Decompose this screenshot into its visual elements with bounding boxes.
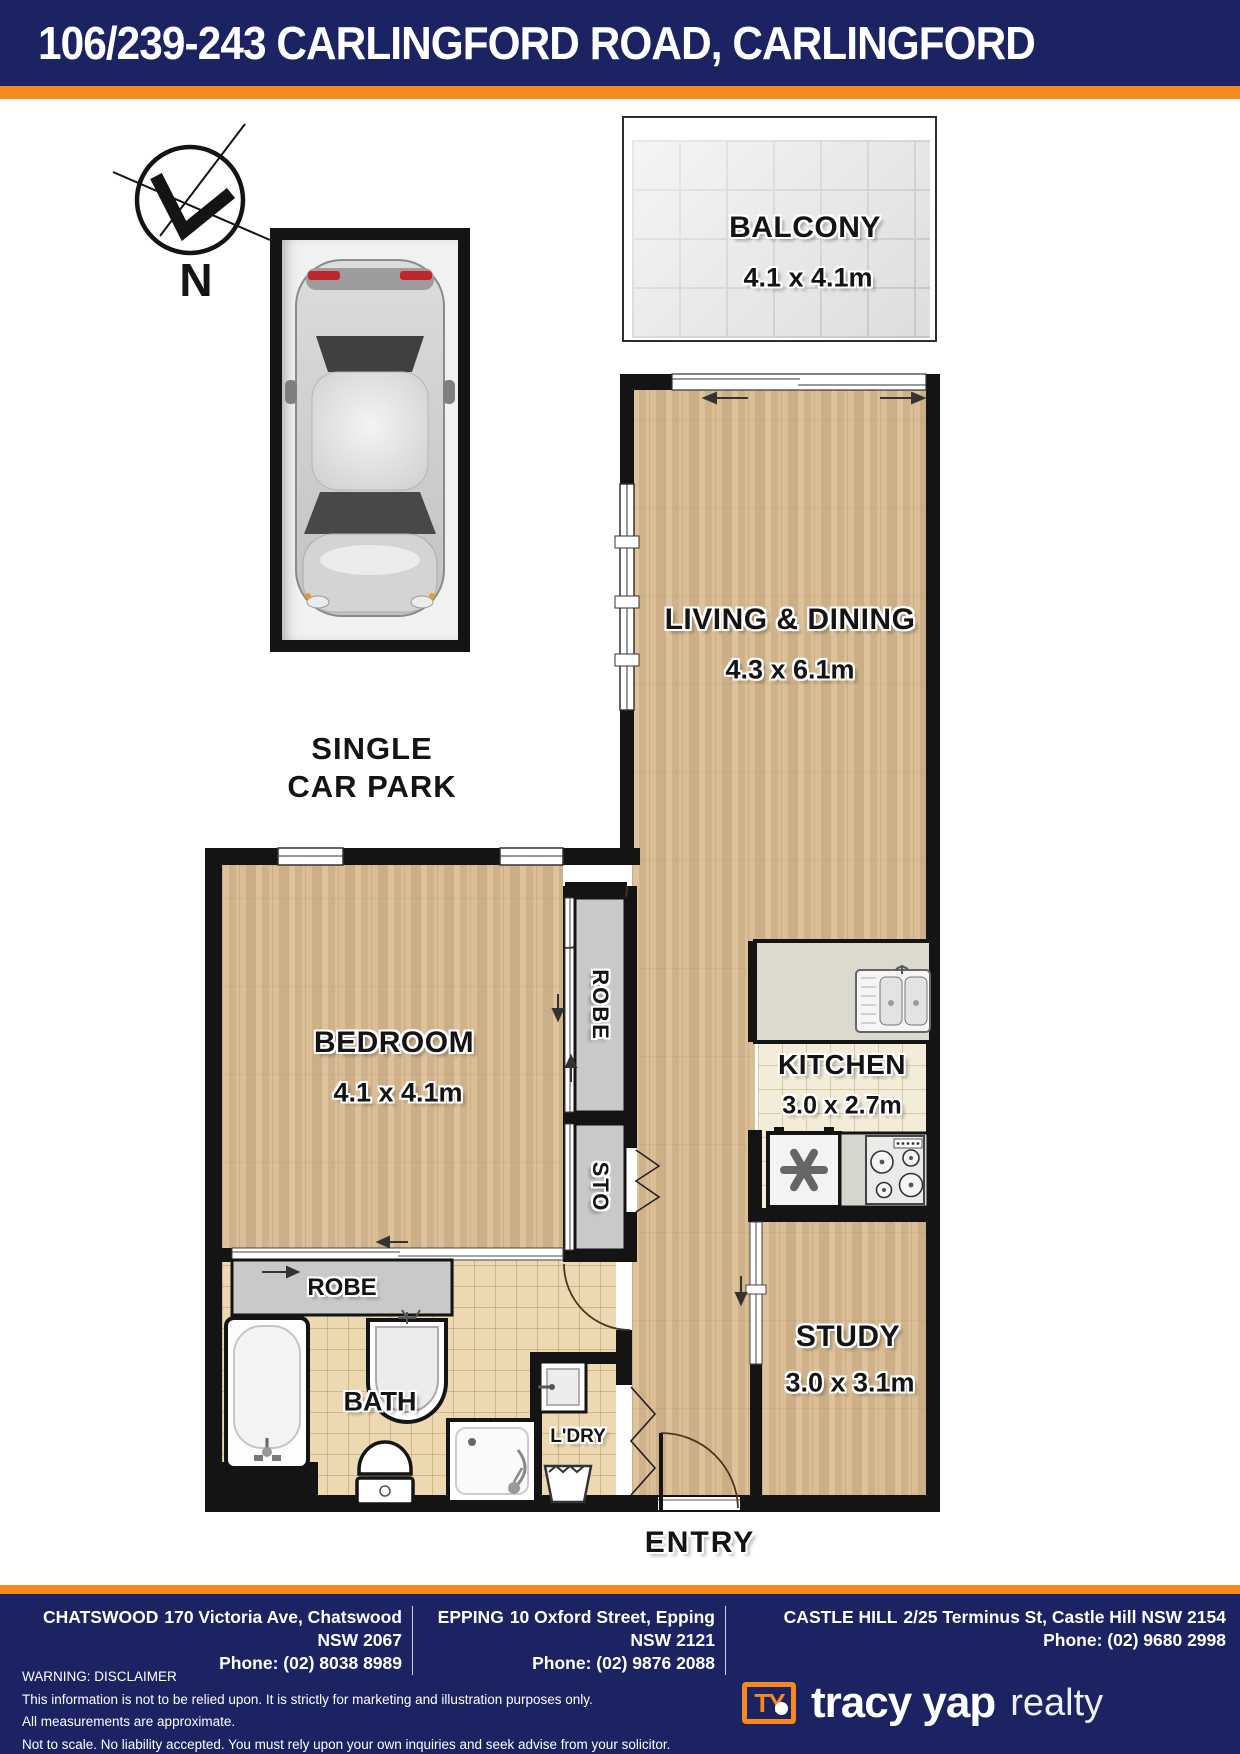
entry-label: ENTRY [645,1526,756,1560]
kitchen-dims: 3.0 x 2.7m [782,1092,902,1121]
office-castle-hill: CASTLE HILL2/25 Terminus St, Castle Hill… [725,1606,1240,1675]
carpark-floor [282,240,458,640]
agency-suffix: realty [1010,1682,1103,1725]
living-dims: 4.3 x 6.1m [725,655,854,686]
living-label: LIVING & DINING [665,603,916,637]
disclaimer-line: This information is not to be relied upo… [22,1689,670,1712]
balcony-label: BALCONY [729,211,881,245]
hallway-floor [632,945,755,1497]
study-dims: 3.0 x 3.1m [785,1368,914,1399]
kitchen-island [755,941,931,1042]
bedroom-label: BEDROOM [314,1026,474,1060]
disclaimer-text: WARNING: DISCLAIMER This information is … [22,1666,670,1754]
laundry-label: L'DRY [550,1426,606,1448]
disclaimer-line: Not to scale. No liability accepted. You… [22,1734,670,1754]
office-address-line: CASTLE HILL2/25 Terminus St, Castle Hill… [736,1606,1226,1629]
disclaimer-line: All measurements are approximate. [22,1711,670,1734]
header-bar: 106/239-243 CARLINGFORD ROAD, CARLINGFOR… [0,0,1240,86]
bathroom-floor [222,1248,616,1497]
agency-logo-mark-icon: TY [742,1682,796,1724]
balcony-dims: 4.1 x 4.1m [743,263,872,294]
agency-name: tracy yap [811,1678,995,1728]
agency-logo: TY tracy yap realty [742,1678,1103,1728]
office-address-line: CHATSWOOD170 Victoria Ave, Chatswood NSW… [10,1606,402,1652]
office-address: 2/25 Terminus St, Castle Hill NSW 2154 [903,1607,1226,1627]
storage-label: STO [587,1162,613,1213]
study-label: STUDY [796,1320,900,1354]
office-list: CHATSWOOD170 Victoria Ave, Chatswood NSW… [0,1594,1240,1675]
logo-mark-dot [775,1702,788,1715]
carpark-label-line1: SINGLE [287,730,456,768]
office-address-line: EPPING10 Oxford Street, Epping NSW 2121 [423,1606,715,1652]
footer-bar: CHATSWOOD170 Victoria Ave, Chatswood NSW… [0,1594,1240,1754]
office-epping: EPPING10 Oxford Street, Epping NSW 2121 … [412,1606,725,1675]
carpark-label-line2: CAR PARK [287,768,456,806]
bedroom-dims: 4.1 x 4.1m [333,1078,462,1109]
page-title: 106/239-243 CARLINGFORD ROAD, CARLINGFOR… [38,16,1035,70]
study-floor [762,1222,926,1497]
kitchen-label: KITCHEN [778,1049,906,1081]
compass-north-label: N [179,253,212,307]
sink-icon [856,966,930,1032]
office-name: CASTLE HILL [784,1607,898,1627]
office-phone: Phone: (02) 9680 2998 [736,1629,1226,1652]
office-address: 170 Victoria Ave, Chatswood NSW 2067 [164,1607,402,1650]
office-chatswood: CHATSWOOD170 Victoria Ave, Chatswood NSW… [0,1606,412,1675]
robe-tall-label: ROBE [587,969,613,1041]
footer-accent-line [0,1585,1240,1594]
compass-icon [113,124,270,253]
office-name: CHATSWOOD [43,1607,158,1627]
bath-label: BATH [344,1387,417,1418]
floorplan-page: 106/239-243 CARLINGFORD ROAD, CARLINGFOR… [0,0,1240,1754]
robe-bedroom-label: ROBE [307,1274,376,1302]
office-address: 10 Oxford Street, Epping NSW 2121 [510,1607,715,1650]
office-name: EPPING [438,1607,504,1627]
carpark-label: SINGLE CAR PARK [287,730,456,806]
header-accent-line [0,86,1240,99]
disclaimer-line: WARNING: DISCLAIMER [22,1666,670,1689]
